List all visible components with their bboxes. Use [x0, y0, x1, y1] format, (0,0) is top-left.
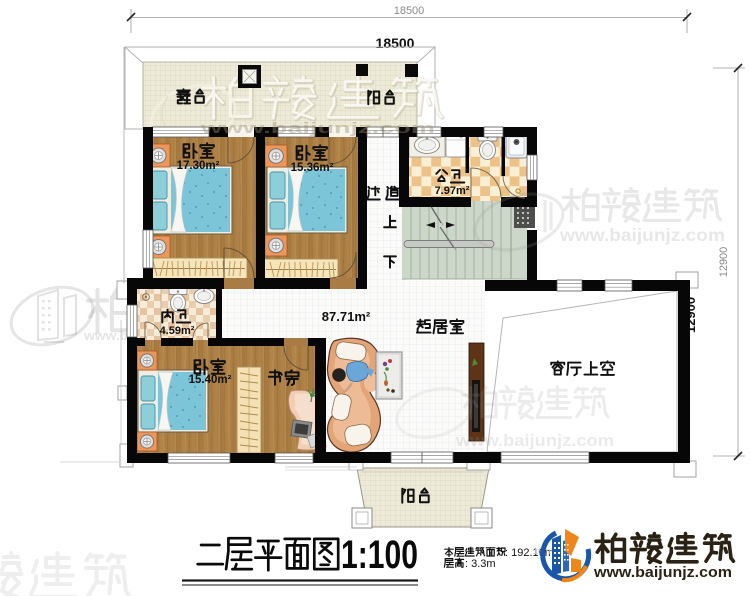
svg-text:18500: 18500 — [376, 35, 415, 51]
svg-text:18500: 18500 — [394, 5, 425, 17]
svg-text:87.71m²: 87.71m² — [322, 309, 371, 324]
svg-text:www.baijunjz.com: www.baijunjz.com — [593, 565, 732, 581]
svg-text:15.40m²: 15.40m² — [189, 374, 232, 386]
svg-text:1:100: 1:100 — [341, 533, 418, 577]
svg-text:www.baijunjz.com: www.baijunjz.com — [199, 120, 435, 137]
svg-text:www.baijunjz.com: www.baijunjz.com — [455, 431, 614, 450]
svg-text:: 3.3m: : 3.3m — [465, 558, 496, 570]
svg-text:4.59m²: 4.59m² — [160, 325, 195, 337]
svg-text:7.97m²: 7.97m² — [435, 185, 470, 197]
svg-text:www.baijunjz.com: www.baijunjz.com — [559, 225, 725, 245]
svg-text:17.30m²: 17.30m² — [177, 160, 220, 172]
svg-text:12900: 12900 — [718, 247, 730, 278]
svg-text:15.36m²: 15.36m² — [291, 162, 334, 174]
